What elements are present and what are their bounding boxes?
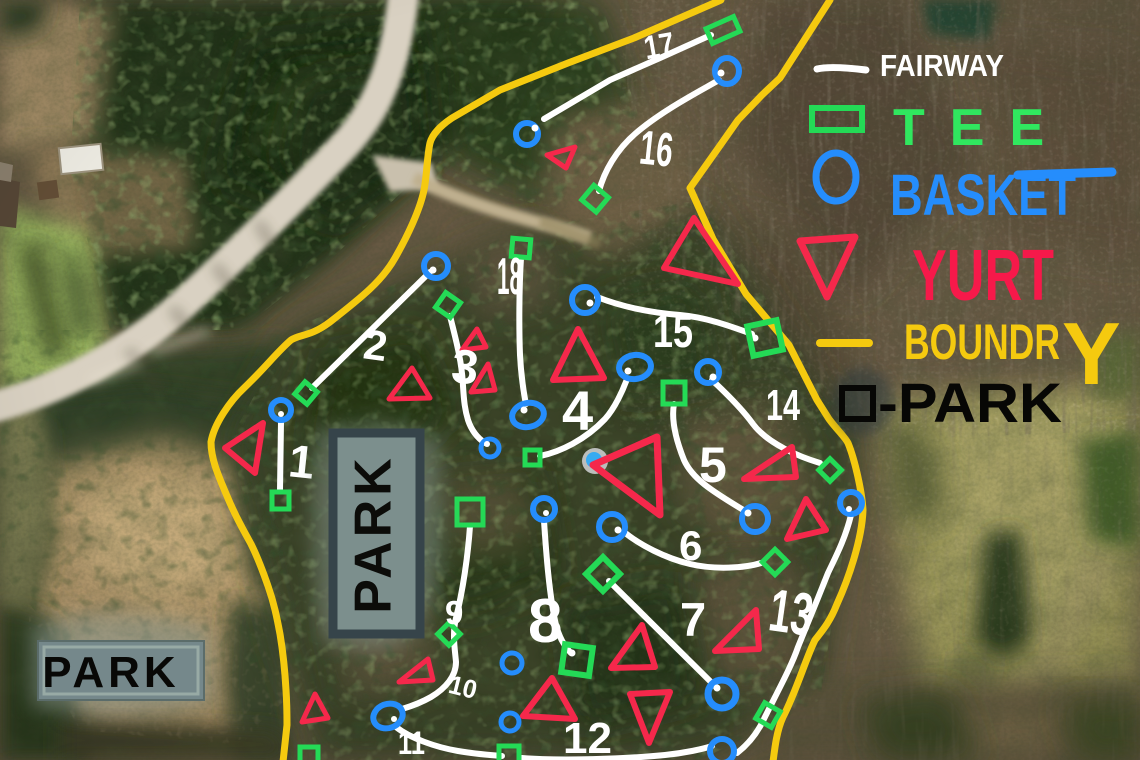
svg-text:PARK: PARK xyxy=(345,454,403,613)
svg-text:17: 17 xyxy=(641,25,677,67)
svg-text:YURT: YURT xyxy=(912,236,1054,316)
svg-text:8: 8 xyxy=(528,587,562,656)
svg-text:9: 9 xyxy=(445,594,463,631)
svg-text:18: 18 xyxy=(497,248,522,306)
svg-text:BOUNDR: BOUNDR xyxy=(904,314,1060,370)
svg-text:11: 11 xyxy=(398,725,425,760)
svg-text:12: 12 xyxy=(563,714,612,760)
svg-text:4: 4 xyxy=(562,379,593,442)
svg-text:3: 3 xyxy=(449,340,481,396)
svg-text:FAIRWAY: FAIRWAY xyxy=(880,48,1004,83)
svg-text:6: 6 xyxy=(679,522,702,569)
svg-text:7: 7 xyxy=(680,593,706,646)
svg-text:-PARK: -PARK xyxy=(878,371,1062,434)
svg-text:Y: Y xyxy=(1062,304,1121,403)
svg-text:PARK: PARK xyxy=(42,648,179,697)
svg-text:15: 15 xyxy=(653,305,693,357)
svg-text:5: 5 xyxy=(699,437,727,493)
svg-text:14: 14 xyxy=(766,381,800,430)
svg-text:1: 1 xyxy=(286,434,317,488)
svg-text:16: 16 xyxy=(637,121,675,177)
svg-text:TEE: TEE xyxy=(893,99,1069,157)
